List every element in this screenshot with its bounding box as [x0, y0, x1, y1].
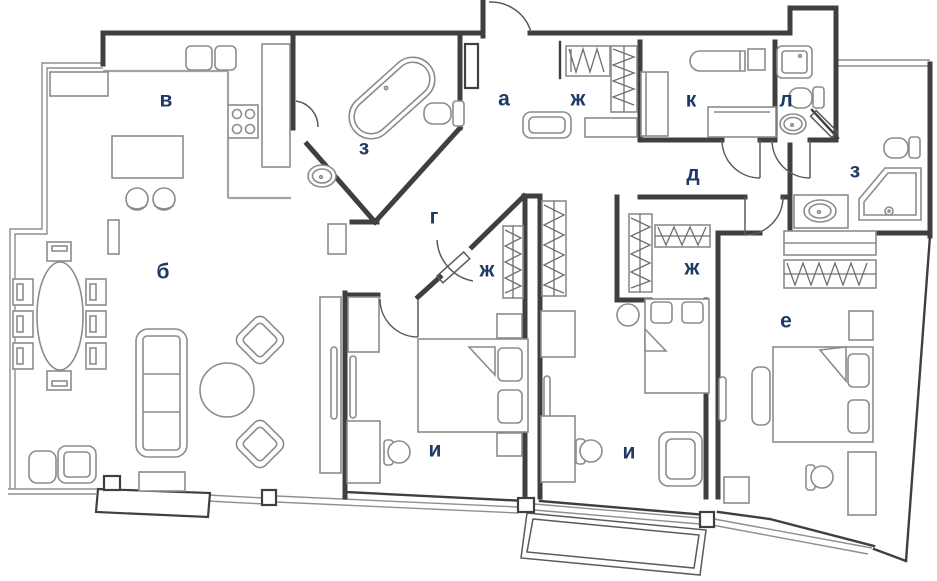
room-label-bedroom-right: е: [780, 311, 792, 332]
pillow: [682, 302, 703, 323]
utility-fixtures: [641, 49, 776, 137]
floor-plan: в з а ж к л д з г ж ж б е и и: [0, 0, 937, 581]
room-label-corridor-main: г: [430, 207, 439, 228]
pillow: [498, 390, 522, 423]
radiator: [331, 347, 337, 419]
armchair: [233, 417, 287, 471]
bedroom3-furniture: [719, 231, 876, 515]
ironing-board: [690, 51, 745, 71]
living-room-furniture: [13, 242, 341, 491]
window-sill-cabinet: [50, 72, 108, 96]
toilet: [424, 103, 451, 124]
floor-plan-drawing: [0, 0, 937, 581]
stove: [228, 105, 258, 138]
ottoman: [29, 451, 56, 483]
bench: [523, 112, 571, 138]
bench: [752, 367, 770, 425]
kitchen-island: [112, 136, 183, 178]
desk: [347, 421, 380, 483]
room-label-bedroom-second: и: [623, 442, 636, 463]
bedroom3-door-arc: [745, 197, 783, 235]
pillow: [848, 400, 869, 433]
pillow: [498, 348, 522, 381]
entrance-door-arc: [489, 2, 531, 32]
room-label-closet-middle: ж: [685, 258, 700, 279]
pillow: [848, 354, 869, 387]
desk: [848, 452, 876, 515]
room-label-living-room: б: [157, 262, 170, 283]
room-label-wc: л: [779, 90, 792, 111]
dining-table: [37, 262, 83, 370]
desk: [541, 416, 575, 482]
nightstand: [497, 314, 522, 338]
armchair: [233, 313, 287, 367]
room-label-bedroom-first: и: [429, 440, 442, 461]
cabinet: [348, 297, 379, 352]
closet-shelf: [585, 118, 637, 137]
room-label-corridor-inner: д: [686, 164, 699, 185]
room-label-utility-room: к: [686, 90, 697, 111]
room-label-closet-walkin: ж: [480, 260, 495, 281]
radiator: [544, 376, 550, 421]
cabinet: [641, 72, 668, 136]
side-table: [617, 304, 639, 326]
room-label-closet-entry: ж: [571, 89, 586, 110]
room-label-bathroom-second: з: [850, 161, 860, 182]
pillow: [651, 302, 672, 323]
bathroom-door-arc: [296, 101, 318, 127]
utility-door-arc: [722, 140, 760, 178]
window-sill: [139, 472, 185, 491]
radiator: [719, 377, 726, 421]
tall-cabinet: [262, 44, 290, 167]
room-label-kitchen: в: [160, 90, 173, 111]
coffee-table: [200, 363, 254, 417]
radiator: [108, 220, 119, 254]
kitchen-sink-bowl: [186, 46, 212, 70]
bathtub: [340, 48, 444, 148]
radiator: [350, 356, 356, 418]
kitchen-fixtures: [50, 44, 346, 254]
kitchen-sink-bowl: [215, 46, 236, 70]
nightstand: [849, 311, 873, 340]
radiator: [328, 224, 346, 254]
room-label-bathroom-main: з: [359, 138, 369, 159]
bathroom-main-fixtures: [308, 48, 464, 187]
bathroom-second-fixtures: [794, 137, 921, 228]
nightstand: [497, 433, 522, 456]
cabinet: [724, 477, 749, 503]
shelf: [541, 311, 575, 357]
room-label-hallway-entry: а: [498, 89, 510, 110]
toilet: [884, 138, 908, 158]
bedroom1-door-arc: [380, 299, 418, 337]
